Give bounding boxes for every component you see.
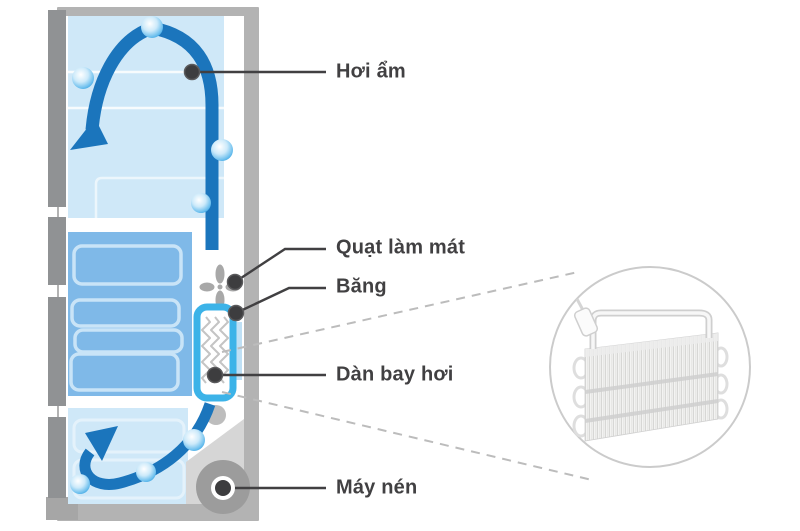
fan-blade	[216, 265, 225, 284]
label-evaporator: Dàn bay hơi	[336, 364, 454, 387]
moisture-droplet-icon	[191, 193, 211, 213]
moisture-droplet-icon	[72, 67, 94, 89]
moisture-droplet-icon	[70, 474, 90, 494]
moisture-droplet-icon	[211, 139, 233, 161]
label-cooling-fan: Quạt làm mát	[336, 237, 465, 260]
refrigerator-cooling-diagram: Hơi ẩm Quạt làm mát Băng Dàn bay hơi Máy…	[0, 0, 800, 531]
zoom-inset-circle	[550, 267, 750, 467]
callout-dot-evaporator	[208, 368, 223, 383]
door-segment	[48, 417, 66, 498]
label-moisture: Hơi ẩm	[336, 61, 406, 84]
label-compressor: Máy nén	[336, 477, 417, 500]
magnifier-dashed-line-top	[222, 272, 578, 352]
moisture-droplet-icon	[141, 16, 163, 38]
cabinet-right-wall	[244, 8, 258, 520]
cabinet-top-frame	[58, 8, 258, 16]
callout-dot-cooling-fan	[228, 275, 243, 290]
fan-hub	[218, 285, 223, 290]
freezer-drawer-compartment	[68, 232, 192, 396]
callout-dot-moisture	[185, 65, 200, 80]
callout-dot-ice	[229, 306, 244, 321]
door-segment	[48, 217, 66, 285]
moisture-droplet-icon	[183, 429, 205, 451]
label-ice: Băng	[336, 276, 387, 299]
door-segment	[48, 10, 66, 207]
magnifier-dashed-line-bottom	[222, 392, 592, 480]
fan-blade	[200, 283, 215, 292]
drawer-box	[68, 232, 192, 396]
callout-dot-compressor	[215, 480, 231, 496]
door-segment	[48, 297, 66, 406]
moisture-droplet-icon	[136, 462, 156, 482]
fridge-door	[48, 10, 66, 498]
